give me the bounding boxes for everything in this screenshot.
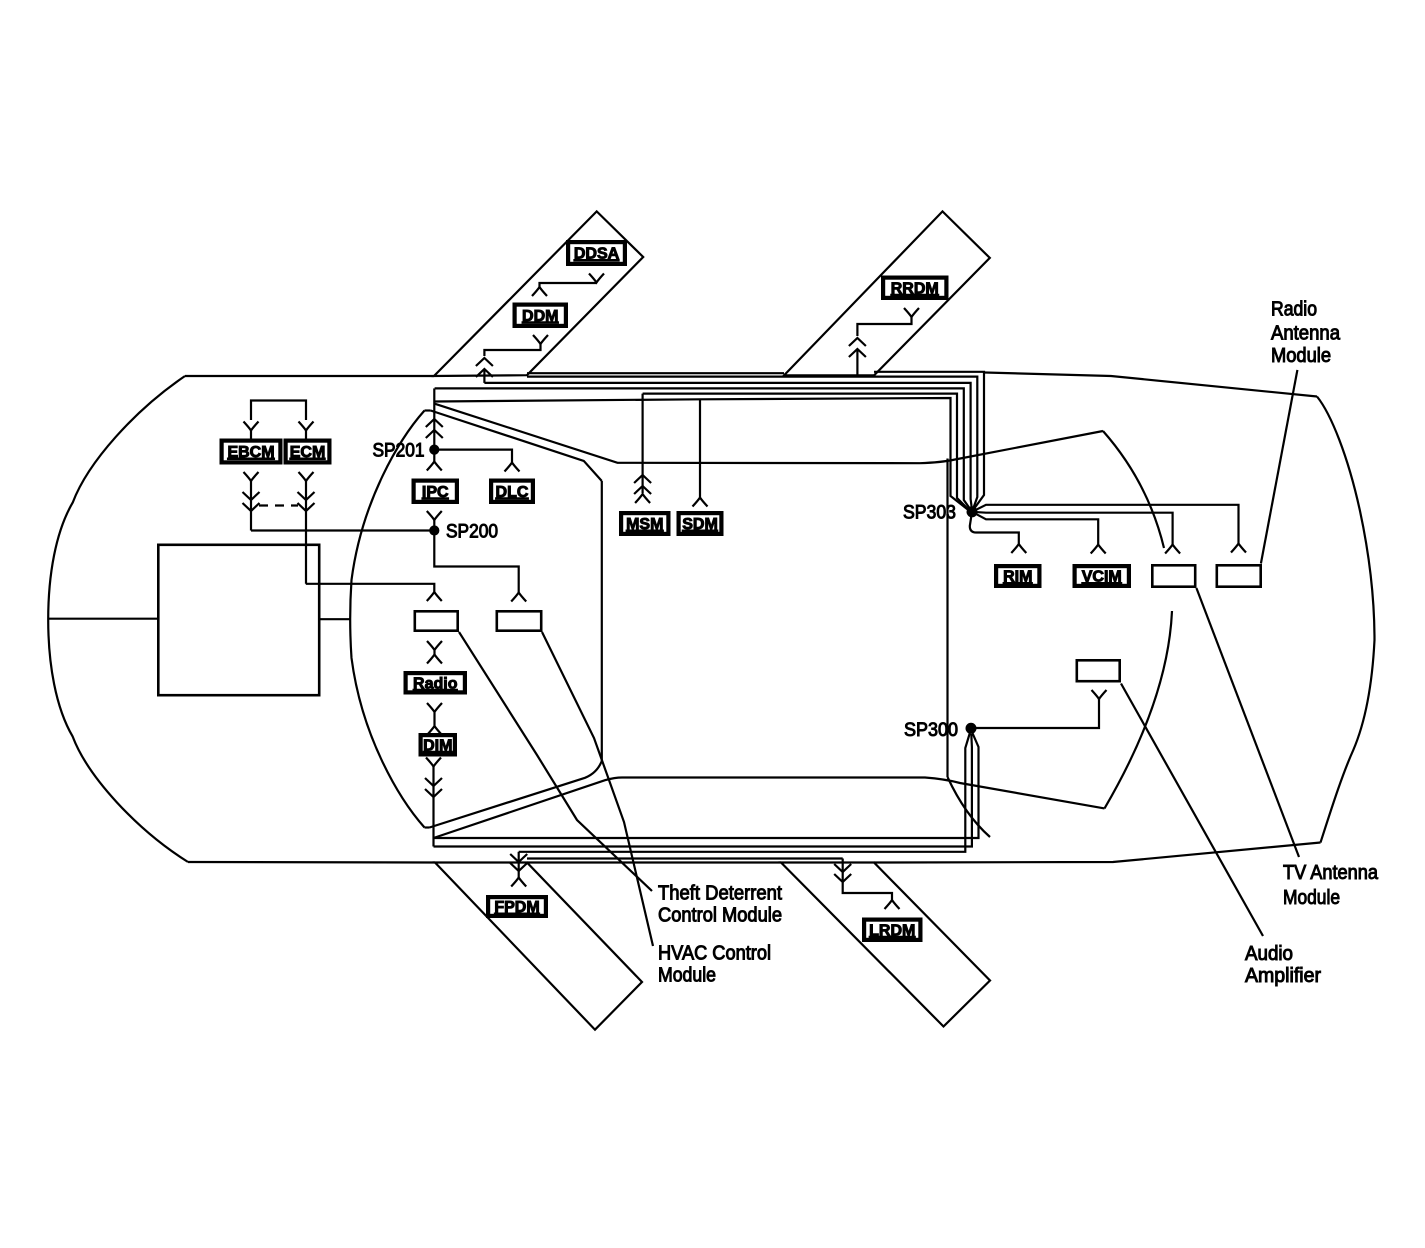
svg-text:TV Antenna: TV Antenna [1283,862,1379,884]
svg-text:SP201: SP201 [373,441,425,462]
svg-text:SP200: SP200 [446,522,498,543]
svg-text:VCIM: VCIM [1082,569,1122,586]
svg-text:Theft Deterrent: Theft Deterrent [658,883,782,905]
svg-text:LRDM: LRDM [869,922,915,939]
svg-text:EBCM: EBCM [227,444,274,461]
svg-text:DDSA: DDSA [574,246,620,263]
svg-text:Radio: Radio [413,675,458,692]
svg-text:SDM: SDM [682,516,718,533]
svg-text:RRDM: RRDM [891,280,939,297]
svg-text:Module: Module [1271,345,1331,367]
svg-text:Antenna: Antenna [1271,322,1341,344]
svg-text:IPC: IPC [422,484,449,501]
svg-text:Module: Module [658,965,716,987]
svg-text:Audio: Audio [1245,943,1293,965]
svg-text:ECM: ECM [290,444,326,461]
svg-text:FPDM: FPDM [494,899,539,916]
svg-text:Amplifier: Amplifier [1245,965,1321,987]
svg-text:Radio: Radio [1271,299,1317,321]
svg-text:HVAC Control: HVAC Control [658,943,771,965]
svg-text:SP300: SP300 [904,720,958,741]
svg-text:RIM: RIM [1003,569,1032,586]
svg-text:DLC: DLC [496,484,529,501]
svg-text:Control Module: Control Module [658,905,782,927]
svg-text:MSM: MSM [626,516,663,533]
svg-text:DIM: DIM [423,737,452,754]
svg-text:DDM: DDM [522,308,558,325]
svg-text:SP303: SP303 [903,503,956,524]
svg-text:Module: Module [1283,887,1340,909]
